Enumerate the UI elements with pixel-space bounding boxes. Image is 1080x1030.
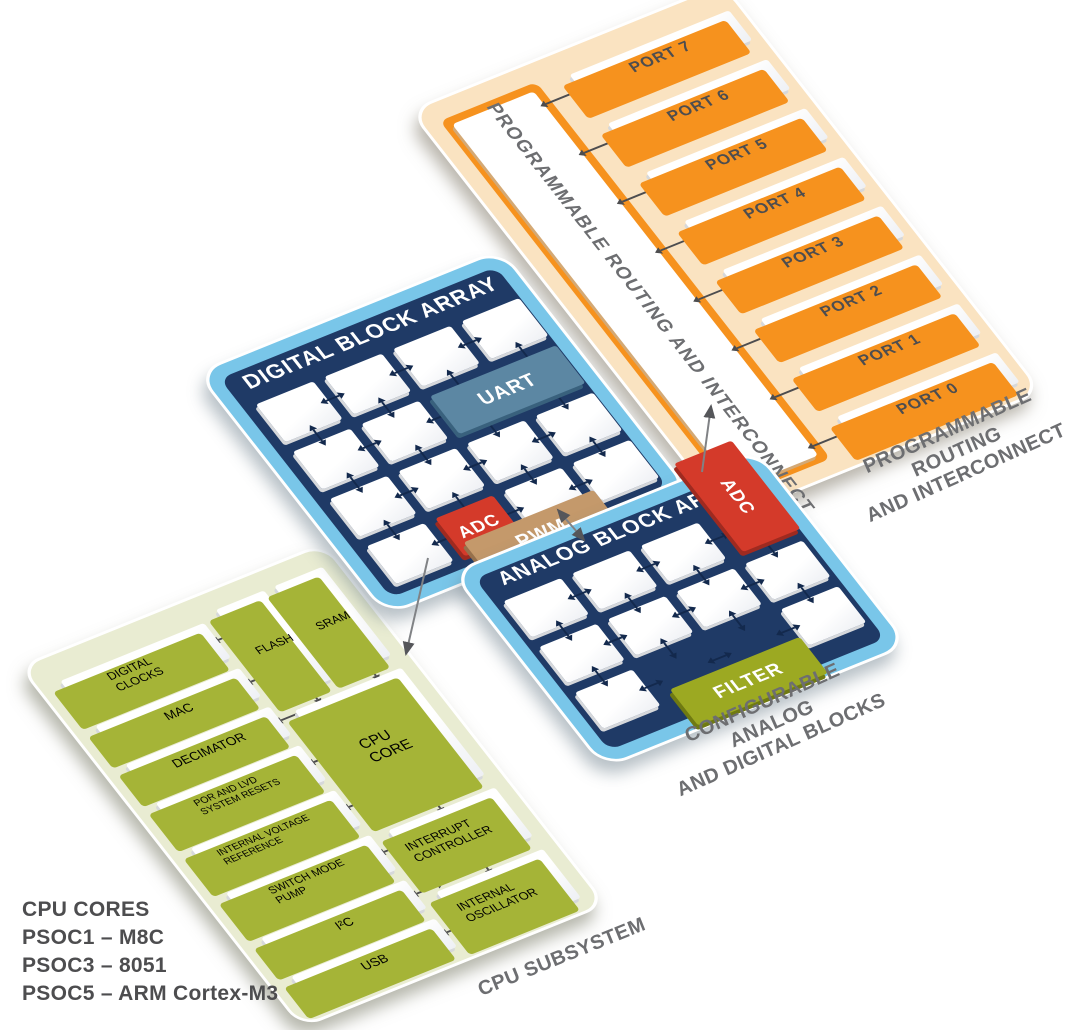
double-arrow bbox=[468, 462, 482, 469]
grid-cell bbox=[535, 393, 622, 454]
grid-cell bbox=[572, 550, 658, 609]
grid-cell bbox=[324, 353, 411, 414]
double-arrow bbox=[463, 339, 477, 346]
grid-cell bbox=[462, 298, 549, 359]
double-arrow bbox=[592, 441, 602, 453]
double-arrow bbox=[381, 402, 391, 414]
cpu-core-block-label: CPU CORE bbox=[355, 720, 424, 766]
grid-cell bbox=[330, 476, 417, 537]
grid-cell bbox=[503, 578, 589, 637]
double-arrow bbox=[487, 421, 497, 433]
double-arrow bbox=[386, 524, 396, 536]
cpu-left-block-label: DIGITAL CLOCKS bbox=[104, 645, 188, 694]
legend-line: PSOC1 – M8C bbox=[22, 924, 278, 952]
double-arrow bbox=[800, 587, 810, 599]
double-arrow bbox=[574, 481, 588, 488]
double-arrow bbox=[644, 682, 658, 689]
grid-cell bbox=[575, 669, 661, 728]
double-arrow bbox=[559, 625, 569, 637]
grid-cell bbox=[745, 540, 831, 599]
double-arrow bbox=[537, 434, 551, 441]
double-arrow bbox=[399, 489, 413, 496]
grid-cell bbox=[539, 624, 625, 683]
grid-cell bbox=[393, 326, 480, 387]
grid-cell bbox=[256, 381, 343, 442]
double-arrow bbox=[627, 597, 637, 609]
double-arrow bbox=[418, 449, 428, 461]
double-arrow bbox=[313, 430, 323, 442]
double-arrow bbox=[765, 541, 775, 553]
memory-block-label: FLASH bbox=[252, 631, 296, 657]
grid-cell bbox=[398, 448, 485, 509]
legend-line: CPU CORES bbox=[22, 896, 278, 924]
grid-cell bbox=[361, 401, 448, 462]
double-arrow bbox=[608, 637, 622, 644]
grid-cell bbox=[676, 568, 762, 627]
double-arrow bbox=[349, 477, 359, 489]
double-arrow bbox=[713, 654, 727, 661]
double-arrow bbox=[573, 591, 587, 598]
memory-block-label: SRAM bbox=[312, 609, 353, 633]
grid-cell bbox=[293, 428, 380, 489]
double-arrow bbox=[363, 442, 377, 449]
double-arrow bbox=[436, 537, 450, 544]
cpu-cores-legend: CPU CORES PSOC1 – M8C PSOC3 – 8051 PSOC5… bbox=[22, 896, 278, 1008]
double-arrow bbox=[781, 627, 795, 634]
legend-line: PSOC3 – 8051 bbox=[22, 952, 278, 980]
grid-cell bbox=[467, 420, 554, 481]
grid-cell bbox=[641, 522, 727, 581]
psoc-architecture-diagram: PROGRAMMABLE ROUTING AND INTERCONNECT PO… bbox=[0, 0, 1080, 1030]
double-arrow bbox=[555, 394, 565, 406]
double-arrow bbox=[696, 569, 706, 581]
cpu-left-block-label: USB bbox=[357, 951, 391, 973]
double-arrow bbox=[326, 395, 340, 402]
double-arrow bbox=[524, 469, 534, 481]
double-arrow bbox=[677, 609, 691, 616]
double-arrow bbox=[710, 535, 724, 542]
double-arrow bbox=[745, 581, 759, 588]
grid-cell bbox=[367, 523, 454, 584]
double-arrow bbox=[663, 643, 673, 655]
double-arrow bbox=[641, 563, 655, 570]
double-arrow bbox=[732, 615, 742, 627]
cpu-left-block-label: MAC bbox=[160, 700, 196, 723]
double-arrow bbox=[595, 670, 605, 682]
adc-label: ADC bbox=[715, 476, 760, 517]
double-arrow bbox=[431, 414, 445, 421]
double-arrow bbox=[394, 367, 408, 374]
legend-line: PSOC5 – ARM Cortex-M3 bbox=[22, 980, 278, 1008]
grid-cell bbox=[608, 596, 694, 655]
grid-cell bbox=[781, 586, 867, 645]
cpu-left-block-label: I²C bbox=[331, 914, 356, 932]
